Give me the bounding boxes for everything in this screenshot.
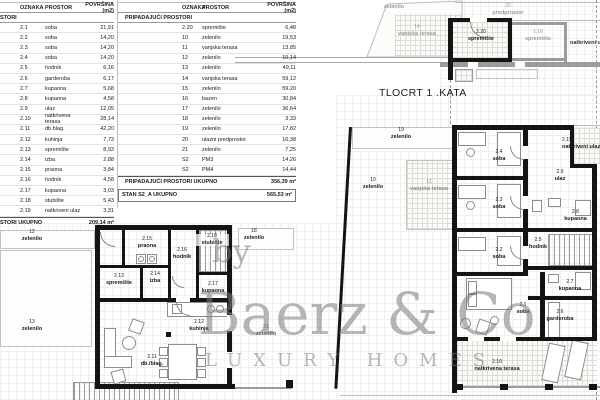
wall	[196, 272, 232, 275]
wall	[122, 228, 125, 265]
table-row: 12zelenilo10,14	[118, 54, 296, 64]
furniture-chair	[197, 369, 206, 378]
table-row: 2.19natkriveni ulaz3,31	[0, 206, 114, 216]
room-25-label: 2.5hodnik	[524, 238, 552, 250]
room-212-label: 2.12kuhinja	[184, 320, 214, 332]
room-217-label: 2.17kupaona	[196, 282, 230, 294]
col-oznaka: OZNAKA	[182, 5, 202, 11]
table-header: OZNAKA PROSTOR POVRŠINA (m2)	[118, 2, 296, 13]
cell-oznaka: 2.8	[20, 96, 45, 102]
furniture-desk	[458, 185, 486, 199]
zelenilo-21-label: 21zelenilo	[248, 325, 284, 337]
roof-edge	[574, 125, 600, 126]
table-row: 11vanjska terasa13,85	[118, 43, 296, 53]
neighbour-wall	[512, 22, 567, 25]
neighbour-wall	[512, 58, 567, 61]
cell-oznaka: 13	[182, 65, 202, 71]
cell-oznaka: 2.4	[20, 55, 45, 61]
cell-prostor: praona	[45, 167, 84, 173]
entry-paving	[455, 69, 473, 82]
table-row: 2.10natkrivena terasa28,14	[0, 115, 114, 125]
cell-povrsina: 14,26	[262, 157, 296, 163]
cell-povrsina: 3,84	[84, 167, 114, 173]
cell-povrsina: 8,93	[84, 147, 114, 153]
zelenilo-18-label: 18zelenilo	[234, 229, 274, 241]
wall	[528, 266, 597, 270]
terrace-14-label: 14vanjska terasa	[392, 25, 442, 37]
cell-povrsina: 3,33	[262, 116, 296, 122]
furniture-sofa	[104, 356, 132, 368]
cell-oznaka: 2.16	[20, 177, 45, 183]
cell-povrsina: 14,44	[262, 167, 296, 173]
cell-prostor: soba	[45, 35, 84, 41]
cell-prostor: PM3	[202, 157, 262, 163]
cell-povrsina: 14,20	[84, 35, 114, 41]
table-section-label: PRIPADAJUĆI PROSTORI	[118, 13, 296, 23]
cell-povrsina: 2,88	[84, 157, 114, 163]
furniture-sofa	[104, 328, 116, 358]
cell-povrsina: 16,38	[262, 137, 296, 143]
cell-oznaka: 14	[182, 76, 202, 82]
cell-povrsina: 17,82	[262, 126, 296, 132]
appliance-dial	[149, 256, 155, 262]
cell-povrsina: 6,17	[84, 76, 114, 82]
terrace-11-zone	[406, 160, 454, 230]
wall	[452, 176, 528, 180]
cell-povrsina: 5,43	[84, 198, 114, 204]
room-116-label: 1.16spremište	[514, 30, 562, 42]
cell-povrsina: 59,12	[262, 76, 296, 82]
cell-povrsina: 3,03	[84, 188, 114, 194]
sidewalk-line	[340, 395, 600, 396]
fixture-toilet	[532, 200, 542, 212]
cell-povrsina: 5,68	[84, 86, 114, 92]
entry-strip	[476, 69, 538, 79]
cell-prostor: kupaona	[45, 86, 84, 92]
cell-oznaka: 2.14	[20, 157, 45, 163]
zelenilo-12-label: 12zelenilo	[12, 230, 52, 242]
cell-povrsina: 19,53	[262, 35, 296, 41]
predprostor-label: 20predprostor	[478, 4, 538, 16]
wall-left	[95, 225, 100, 389]
wall	[448, 58, 512, 62]
table-total-row: STORI UKUPNO 209,14 m²	[0, 217, 114, 228]
cell-prostor: zelenilo	[202, 35, 262, 41]
table-row: 2.6garderoba6,17	[0, 74, 114, 84]
table-row: S2PM314,26	[118, 155, 296, 165]
cell-povrsina: 12,05	[84, 106, 114, 112]
furniture-chair	[197, 358, 206, 367]
total-value: 356,39 m²	[262, 179, 296, 185]
table-row: 2.14izba2,88	[0, 155, 114, 165]
zelenilo-13-label: 13zelenilo	[12, 320, 52, 332]
cell-oznaka: 2.15	[20, 167, 45, 173]
fixture-sink	[548, 198, 561, 207]
furniture-pillow	[468, 294, 477, 307]
furniture-coffee-table	[122, 336, 136, 350]
wall	[540, 272, 545, 341]
wall-top	[95, 225, 232, 230]
cell-povrsina: 49,11	[262, 65, 296, 71]
cell-povrsina: 42,20	[84, 126, 114, 132]
wall-bottom	[95, 384, 235, 389]
cell-oznaka: 2.13	[20, 147, 45, 153]
terrace-11-label: 11vanjska terasa	[405, 180, 453, 192]
cell-prostor: stubište	[45, 198, 84, 204]
window-gap	[227, 315, 232, 331]
room-28-label: 2.8kupaona	[558, 210, 593, 222]
cell-prostor: zelenilo	[202, 126, 262, 132]
table-row: 15zelenilo59,20	[118, 84, 296, 94]
window-gap	[468, 337, 484, 341]
room-215-label: 2.15praona	[130, 237, 164, 249]
table-header: OZNAKA PROSTOR POVRŠINA (m2)	[0, 2, 114, 13]
cell-povrsina: 3,31	[84, 208, 114, 214]
appliance-dial	[138, 256, 144, 262]
cell-prostor: vanjska terasa	[202, 45, 262, 51]
cell-prostor: kupaona	[45, 188, 84, 194]
table-row: 2.12kuhinja7,73	[0, 135, 114, 145]
table-row: 2.16hodnik4,58	[0, 176, 114, 186]
cell-prostor: zelenilo	[202, 55, 262, 61]
table-row: 19zelenilo17,82	[118, 125, 296, 135]
total-label: PRIPADAJUĆI PROSTORI UKUPNO	[125, 179, 262, 185]
natkriveni-ulaz-top-label: natkriveni ulaz	[570, 40, 600, 46]
furniture-chair	[197, 347, 206, 356]
window-gap	[227, 352, 232, 368]
cell-povrsina: 7,73	[84, 137, 114, 143]
table-row: 21zelenilo7,25	[118, 145, 296, 155]
cell-oznaka: 2.9	[20, 106, 45, 112]
room-26-label: 2.6garderoba	[538, 310, 582, 322]
table-row: S2PM414,44	[118, 166, 296, 176]
table-row: 13zelenilo49,11	[118, 64, 296, 74]
cell-oznaka: 2.20	[182, 25, 202, 31]
table-row: 17zelenilo36,64	[118, 105, 296, 115]
zelenilo-10-label: 10zelenilo	[355, 178, 391, 190]
cell-oznaka: 2.11	[20, 126, 45, 132]
cell-prostor: hodnik	[45, 177, 84, 183]
cell-povrsina: 4,58	[84, 177, 114, 183]
table-row: 2.1soba21,91	[0, 23, 114, 33]
zelenilo-19-label: 19zelenilo	[378, 128, 424, 140]
furniture-desk	[458, 132, 486, 146]
wall	[528, 296, 597, 300]
furniture-chair	[466, 148, 475, 157]
table-unit-rooms: OZNAKA PROSTOR POVRŠINA (m2) STORI 2.1so…	[0, 2, 114, 228]
table-row: 10zelenilo19,53	[118, 33, 296, 43]
furniture-chair	[460, 318, 471, 329]
grand-total-label: STAN S2_A UKUPNO	[122, 192, 258, 198]
total-value: 209,14 m²	[84, 220, 114, 226]
table-body: 2.20spremište6,4810zelenilo19,5311vanjsk…	[118, 23, 296, 176]
cell-povrsina: 7,25	[262, 147, 296, 153]
furniture-chair	[466, 201, 475, 210]
cell-povrsina: 36,64	[262, 106, 296, 112]
cell-povrsina: 30,84	[262, 96, 296, 102]
cell-prostor: spremište	[45, 147, 84, 153]
cell-prostor: natkriveni ulaz	[45, 208, 84, 214]
table-row: 14vanjska terasa59,12	[118, 74, 296, 84]
cell-povrsina: 14,20	[84, 45, 114, 51]
cell-prostor: natkrivena terasa	[45, 113, 84, 125]
cell-oznaka: 2.17	[20, 188, 45, 194]
col-oznaka: OZNAKA	[20, 5, 45, 11]
table-row: 2.2soba14,20	[0, 33, 114, 43]
wall	[168, 228, 171, 298]
pillar	[589, 384, 597, 390]
room-213-label: 2.13spremište	[100, 274, 138, 286]
col-prostor: PROSTOR	[202, 5, 262, 11]
table-row: 2.3soba14,20	[0, 43, 114, 53]
cell-povrsina: 28,14	[84, 116, 114, 122]
cell-oznaka: 10	[182, 35, 202, 41]
cell-prostor: zelenilo	[202, 116, 262, 122]
cell-prostor: kupaona	[45, 96, 84, 102]
cell-prostor: kuhinja	[45, 137, 84, 143]
cell-prostor: zelenilo	[202, 65, 262, 71]
cell-prostor: bazen	[202, 96, 262, 102]
cell-prostor: soba	[45, 25, 84, 31]
cell-prostor: zelenilo	[202, 147, 262, 153]
pillar	[500, 384, 508, 390]
terrace-edge	[452, 386, 600, 388]
room-220-label: 2.20spremište	[458, 30, 504, 42]
cell-prostor: db.blag.	[45, 126, 84, 132]
table-row: 2.17kupaona3,03	[0, 186, 114, 196]
furniture-chair	[159, 369, 168, 378]
cell-oznaka: 2.2	[20, 35, 45, 41]
terrace-edge	[232, 387, 292, 389]
cell-oznaka: 2.1	[20, 25, 45, 31]
kitchen-sink	[207, 305, 215, 313]
pillar	[545, 384, 553, 390]
kitchen-sink	[216, 305, 224, 313]
cell-oznaka: 12	[182, 55, 202, 61]
pillar	[286, 380, 293, 388]
cell-oznaka: S2	[182, 167, 202, 173]
wall-top	[452, 125, 574, 130]
cell-oznaka: 2.19	[20, 208, 45, 214]
cell-prostor: ulazni predprostor	[202, 137, 262, 143]
col-povrsina: POVRŠINA (m2)	[84, 2, 114, 14]
cell-oznaka: 11	[182, 45, 202, 51]
window-gap	[500, 337, 516, 341]
cell-oznaka: S2	[182, 157, 202, 163]
cell-povrsina: 13,85	[262, 45, 296, 51]
cell-oznaka: 2.12	[20, 137, 45, 143]
cell-povrsina: 21,91	[84, 25, 114, 31]
table-row: 20ulazni predprostor16,38	[118, 135, 296, 145]
wall-gap	[468, 62, 478, 67]
niche-wall	[570, 164, 596, 168]
table-appurtenant: OZNAKA PROSTOR POVRŠINA (m2) PRIPADAJUĆI…	[118, 2, 296, 202]
cell-povrsina: 6,48	[262, 25, 296, 31]
table-body: 2.1soba21,912.2soba14,202.3soba14,202.4s…	[0, 23, 114, 217]
zelenilo-15-label: zelenilo	[372, 4, 416, 10]
table-row: 2.15praona3,84	[0, 166, 114, 176]
grand-total-row: STAN S2_A UKUPNO 565,53 m²	[118, 189, 296, 202]
furniture-desk	[458, 237, 486, 251]
cell-prostor: zelenilo	[202, 106, 262, 112]
table-row: 2.20spremište6,48	[118, 23, 296, 33]
wall	[448, 18, 453, 80]
col-prostor: PROSTOR	[45, 5, 84, 11]
wall	[452, 272, 528, 276]
cell-povrsina: 59,20	[262, 86, 296, 92]
wall	[95, 298, 232, 302]
stairs	[548, 234, 594, 266]
floorplan-sheet: OZNAKA PROSTOR POVRŠINA (m2) STORI 2.1so…	[0, 0, 600, 400]
cell-prostor: zelenilo	[202, 86, 262, 92]
cell-prostor: hodnik	[45, 65, 84, 71]
cell-prostor: garderoba	[45, 76, 84, 82]
cell-prostor: soba	[45, 45, 84, 51]
wall	[508, 18, 512, 62]
cell-oznaka: 2.3	[20, 45, 45, 51]
cell-oznaka: 21	[182, 147, 202, 153]
room-24-label: 2.4soba	[484, 150, 514, 162]
room-27-label: 2.7kupaona	[552, 280, 588, 292]
total-label: STORI UKUPNO	[0, 220, 84, 226]
zelenilo-13-zone	[0, 250, 92, 347]
cell-oznaka: 2.10	[20, 116, 45, 122]
table-row: 2.5hodnik6,16	[0, 64, 114, 74]
plan-title: TLOCRT 1 .KATA	[379, 87, 467, 99]
wall-right	[592, 164, 597, 341]
cell-prostor: soba	[45, 55, 84, 61]
cell-oznaka: 2.7	[20, 86, 45, 92]
room-211-label: 2.11db./blag.	[134, 355, 170, 367]
table-row: 2.18stubište5,43	[0, 196, 114, 206]
cell-prostor: spremište	[202, 25, 262, 31]
predprostor-line	[455, 2, 600, 3]
cell-prostor: ulaz	[45, 106, 84, 112]
column	[166, 332, 171, 337]
cell-prostor: izba	[45, 157, 84, 163]
cell-povrsina: 6,16	[84, 65, 114, 71]
cell-povrsina: 10,14	[262, 55, 296, 61]
room-216-label: 2.16hodnik	[167, 248, 197, 260]
neighbour-wall	[564, 22, 567, 62]
col-povrsina: POVRŠINA (m2)	[262, 2, 296, 14]
cell-oznaka: 2.6	[20, 76, 45, 82]
room-22-label: 2.2soba	[484, 248, 514, 260]
furniture-dining-table	[168, 344, 197, 380]
cell-oznaka: 2.5	[20, 65, 45, 71]
wall-gap	[515, 62, 525, 67]
pillar	[455, 384, 463, 390]
table-row: 2.4soba14,20	[0, 54, 114, 64]
terrace-210-label: 2.10natkrivena terasa	[462, 360, 532, 372]
cell-prostor: PM4	[202, 167, 262, 173]
cell-oznaka: 19	[182, 126, 202, 132]
table-row: 2.11db.blag.42,20	[0, 125, 114, 135]
room-214-label: 2.14izba	[143, 272, 167, 284]
room-218-label: 2.18stubište	[195, 234, 229, 246]
furniture-pillow	[468, 281, 477, 294]
furniture-table	[490, 316, 499, 325]
table-row: 16bazen30,84	[118, 94, 296, 104]
table-row: 2.8kupaona4,58	[0, 94, 114, 104]
table-section-label: STORI	[0, 13, 114, 23]
cell-oznaka: 15	[182, 86, 202, 92]
cell-oznaka: 20	[182, 137, 202, 143]
table-total-row: PRIPADAJUĆI PROSTORI UKUPNO 356,39 m²	[118, 176, 296, 187]
table-row: 2.7kupaona5,68	[0, 84, 114, 94]
room-29-label: 2.9ulaz	[545, 170, 575, 182]
cell-oznaka: 2.18	[20, 198, 45, 204]
grand-total-value: 565,53 m²	[258, 192, 292, 198]
cell-oznaka: 18	[182, 116, 202, 122]
cell-oznaka: 16	[182, 96, 202, 102]
table-row: 2.13spremište8,93	[0, 145, 114, 155]
cell-povrsina: 4,58	[84, 96, 114, 102]
wall-left	[452, 125, 457, 393]
table-row: 18zelenilo3,33	[118, 115, 296, 125]
wall	[98, 265, 171, 268]
cell-povrsina: 14,20	[84, 55, 114, 61]
room-219-label: 2.19natkriveni ulaz	[562, 138, 600, 150]
cell-prostor: vanjska terasa	[202, 76, 262, 82]
room-21-label: 2.1soba	[508, 303, 538, 315]
cell-oznaka: 17	[182, 106, 202, 112]
room-23-label: 2.3soba	[484, 198, 514, 210]
